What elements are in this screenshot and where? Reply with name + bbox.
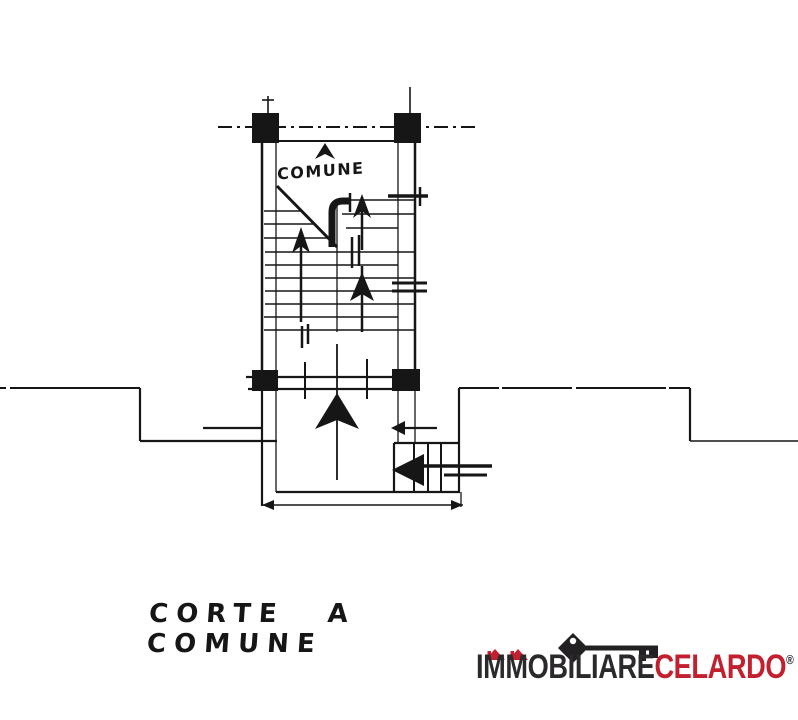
lower-room-walls [262, 388, 460, 506]
column-mid-right [392, 369, 420, 391]
column-top-right [394, 113, 421, 143]
up-arrow-left-flight [292, 227, 310, 322]
up-arrow-lower-room [315, 344, 359, 480]
agency-logo: IMMOBILIARECELARDO® [476, 628, 786, 698]
left-wing-walls [0, 388, 277, 441]
logo-wordmark: IMMOBILIARECELARDO® [476, 650, 794, 684]
column-top-left [252, 113, 279, 143]
logo-text-primary: IMMOBILIARE [476, 648, 654, 686]
right-wall-window-marks [388, 187, 428, 291]
stair-treads [264, 200, 414, 330]
registered-mark-icon: ® [786, 652, 794, 667]
logo-text-accent: CELARDO [654, 648, 786, 686]
arrow-marker-lower-flight [350, 266, 374, 332]
comune-arrow-icon [315, 143, 335, 159]
dimension-line [262, 492, 463, 510]
middle-wall [246, 359, 420, 399]
right-wing-walls [459, 388, 798, 441]
top-axis [218, 87, 475, 143]
up-arrow-right-flight [353, 194, 371, 250]
column-mid-left [252, 370, 278, 391]
